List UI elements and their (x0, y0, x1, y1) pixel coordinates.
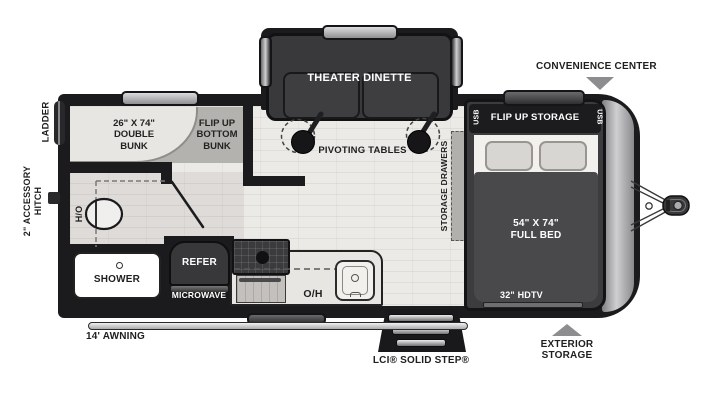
hitch-coupler (663, 196, 689, 215)
slide-side-window (450, 36, 463, 88)
overhead-cabinet-label: O/H (295, 288, 331, 300)
oven (236, 275, 286, 303)
ladder-icon (54, 101, 65, 145)
slide-top-window (322, 25, 398, 40)
shower-head-icon (116, 262, 123, 269)
flip-up-storage-headboard: FLIP UP STORAGE (469, 104, 601, 133)
slide-side-window (259, 36, 272, 88)
double-bunk-label: 26" X 74" DOUBLE BUNK (82, 111, 186, 159)
convenience-center-label: CONVENIENCE CENTER (536, 61, 656, 72)
bunk-room-side-wall (243, 96, 253, 186)
sink-faucet-icon (350, 292, 361, 297)
shower: SHOWER (73, 252, 161, 299)
full-bed-mattress: 54" X 74" FULL BED 32" HDTV (474, 172, 598, 302)
floorplan-canvas: 26" X 74" DOUBLE BUNK FLIP UP BOTTOM BUN… (0, 0, 719, 400)
exterior-storage-arrow (552, 324, 582, 336)
convenience-center-arrow (586, 77, 614, 90)
tv-icon (483, 302, 583, 308)
step-tread (396, 339, 446, 347)
flip-up-storage-label: FLIP UP STORAGE (469, 112, 601, 123)
bed-size-label: 54" X 74" FULL BED (474, 218, 598, 242)
bed-platform: FLIP UP STORAGE 54" X 74" FULL BED 32" H… (464, 99, 606, 311)
solid-step-label: LCI® SOLID STEP® (355, 355, 487, 366)
awning-bar (88, 322, 468, 330)
shower-label: SHOWER (75, 274, 159, 285)
ladder-label: LADDER (41, 102, 52, 143)
oven-handle (239, 278, 281, 282)
pillow (539, 141, 587, 171)
theater-dinette-sofa: THEATER DINETTE (266, 33, 453, 121)
pillow (485, 141, 533, 171)
microwave-label: MICROWAVE (166, 290, 232, 300)
usb-port-label: USB (596, 109, 603, 124)
awning-label: 14' AWNING (86, 331, 145, 342)
usb-port-label: USB (474, 109, 481, 124)
step-tread (388, 314, 454, 322)
theater-dinette-label: THEATER DINETTE (269, 72, 450, 84)
exterior-storage-label: EXTERIOR STORAGE (531, 340, 603, 361)
door-jamb-wall (161, 162, 172, 184)
refrigerator-label: REFER (171, 257, 228, 268)
bunk-room: 26" X 74" DOUBLE BUNK FLIP UP BOTTOM BUN… (70, 107, 244, 163)
front-cap (602, 100, 634, 312)
storage-drawers-label: STORAGE DRAWERS (439, 141, 449, 232)
kitchen-sink (335, 260, 375, 301)
sink-drain-icon (351, 274, 359, 282)
living-half-wall (243, 176, 305, 186)
water-heater-label: H/O (74, 206, 84, 223)
burner-icon (256, 251, 269, 264)
stove-cooktop (232, 239, 290, 275)
flip-up-bunk-label: FLIP UP BOTTOM BUNK (190, 111, 244, 159)
bunk-window (121, 91, 199, 106)
bedroom-window (503, 90, 585, 106)
accessory-hitch-label: 2" ACCESSORY HITCH (22, 166, 44, 237)
accessory-hitch-receiver (48, 192, 60, 204)
pivoting-tables-label: PIVOTING TABLES (305, 145, 420, 156)
bunk-room-wall (64, 162, 172, 173)
tv-label: 32" HDTV (500, 290, 543, 300)
refrigerator: REFER (169, 241, 230, 286)
